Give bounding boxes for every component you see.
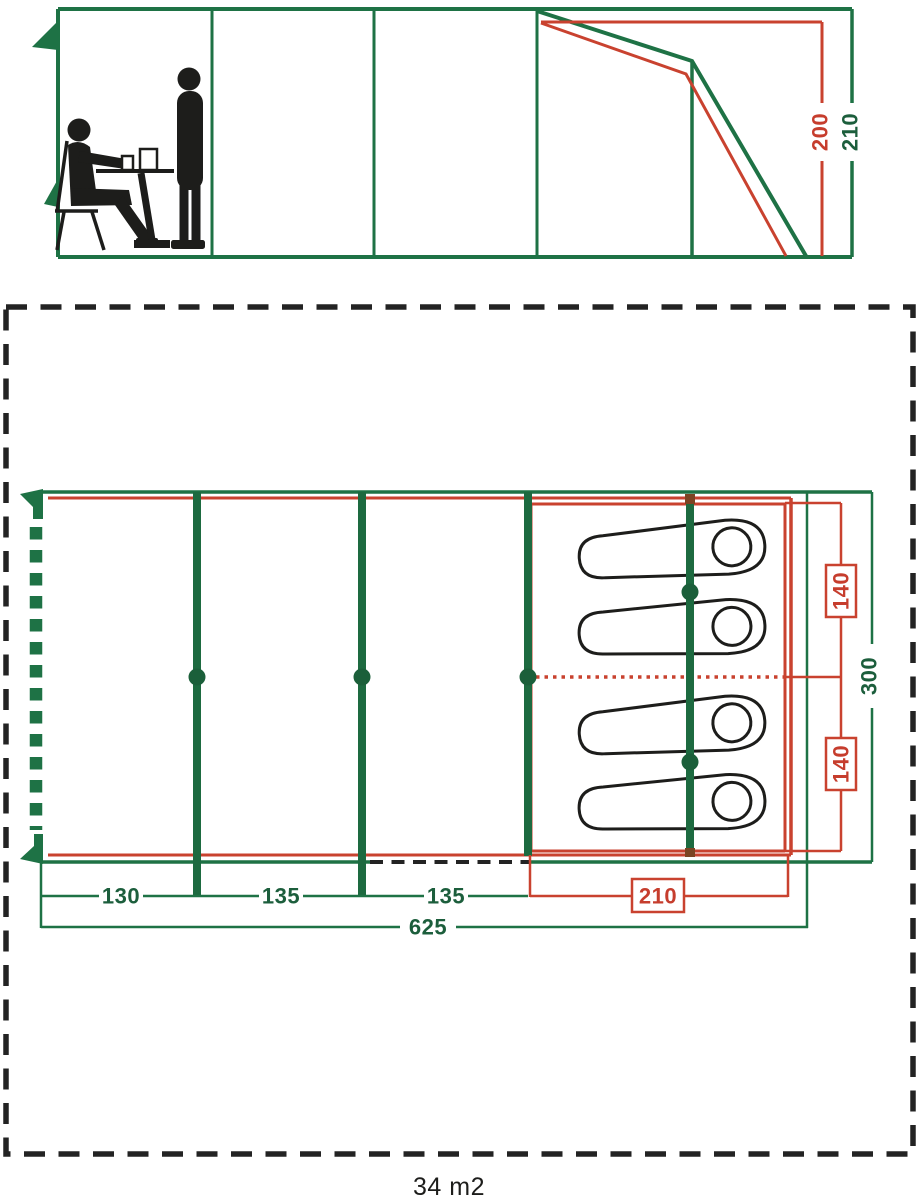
section-width-label: 135 xyxy=(262,884,300,909)
seated-person-icon xyxy=(55,119,174,251)
bedroom-depth-label: 140 xyxy=(829,572,854,610)
pole-joint-icon xyxy=(354,669,371,686)
sleeping-bag-icon xyxy=(578,773,766,835)
inner-height-label: 200 xyxy=(808,113,833,151)
floor-area-label: 34 m2 xyxy=(413,1173,485,1200)
standing-person-icon xyxy=(171,68,205,250)
side-rear-slope-inner xyxy=(541,23,786,256)
sleeping-bag-icon xyxy=(577,694,766,761)
total-width-label: 625 xyxy=(409,915,447,940)
pole-seam-crossing xyxy=(685,494,695,504)
section-width-label: 135 xyxy=(427,884,465,909)
bedroom-depth-label: 140 xyxy=(829,745,854,783)
corner-flag-icon xyxy=(20,834,43,864)
side-elevation: 200 210 xyxy=(32,9,863,257)
pole-seam-crossing xyxy=(685,848,695,857)
diagram-canvas: 200 210 xyxy=(0,0,920,1200)
depth-dim-ticks xyxy=(785,503,841,851)
bedroom-width-label: 210 xyxy=(639,884,677,909)
sleeping-bag-icon xyxy=(577,518,766,585)
cup-icon xyxy=(122,156,133,170)
corner-flag-icon xyxy=(32,21,58,50)
carton-icon xyxy=(140,149,157,170)
pole-joint-icon xyxy=(682,754,699,771)
corner-flag-icon xyxy=(20,489,43,519)
sleeping-bag-icon xyxy=(578,598,766,660)
corner-flag-icon xyxy=(44,179,58,207)
tent-dimension-diagram: 200 210 xyxy=(0,0,920,1200)
section-width-label: 130 xyxy=(102,884,140,909)
outer-height-label: 210 xyxy=(838,113,863,151)
floor-plan: 140 140 300 130 135 135 210 625 xyxy=(6,307,913,1154)
pole-joint-icon xyxy=(189,669,206,686)
groundsheet-dashed-border xyxy=(6,307,913,1154)
pole-joint-icon xyxy=(682,584,699,601)
pole-joint-icon xyxy=(520,669,537,686)
total-depth-label: 300 xyxy=(857,657,882,695)
